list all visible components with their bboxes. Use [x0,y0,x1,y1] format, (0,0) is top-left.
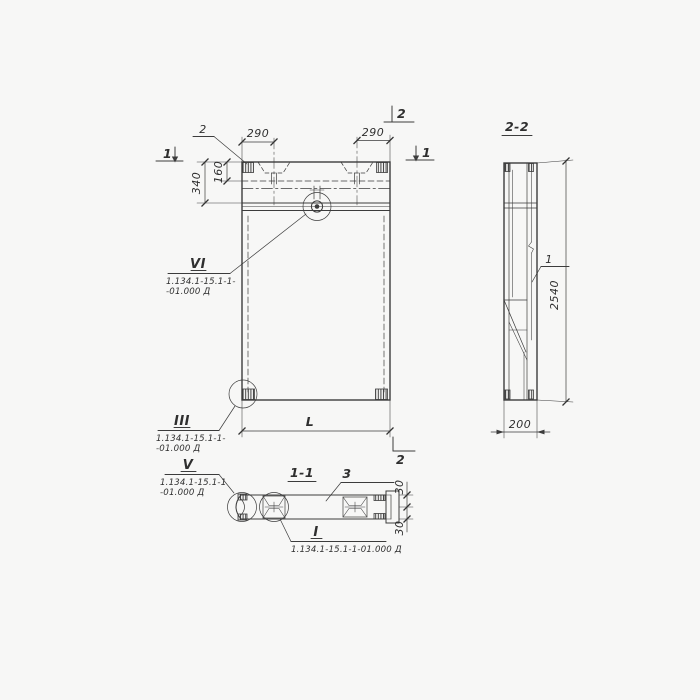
callout-vi: VI 1.134.1-15.1-1- -01.000 Д [166,214,306,297]
callout-vi-numeral: VI [190,257,206,272]
callout-iii-numeral: III [174,414,190,429]
dim-length: L [306,414,314,429]
callout-i: I 1.134.1-15.1-1-01.000 Д [281,520,402,555]
callout-v-doc2: -01.000 Д [160,488,205,498]
callout-i-numeral: I [313,525,318,540]
marker-2-bottom-label: 2 [396,452,405,467]
embed-leader-label: 2 [199,123,207,136]
part-1-text: 1 [545,253,553,266]
marker-1-right-label: 1 [422,145,431,160]
section-marker-1-right: 1 [406,145,434,162]
embed-2-2-bottom-right [529,390,534,399]
callout-v: V 1.134.1-15.1-1 -01.000 Д [160,458,234,498]
callout-iii-doc2: -01.000 Д [156,444,201,454]
section-1-1-view: 1-1 3 [160,458,413,555]
anchor-marks [272,173,360,184]
socket-detail-1 [263,496,285,518]
section-2-2-title: 2-2 [505,119,529,134]
bar-right-end [374,491,399,523]
bar-left-end [236,494,247,520]
dim-340: 340 [190,172,203,195]
callout-vi-doc2: -01.000 Д [166,287,211,297]
section-marker-2-bottom: 2 [393,437,415,467]
embed-2-2-top-left [505,164,510,172]
part-3-text: 3 [342,466,351,481]
dim-200: 200 [509,418,532,431]
embed-leader: 2 [193,123,247,164]
embed-2-2-bottom-left [505,390,510,399]
elevation-view [229,137,390,408]
section-marker-2-top: 2 [384,106,414,122]
dim-290-left: 290 [247,127,270,140]
marker-2-top-label: 2 [397,106,406,121]
section-1-1-title: 1-1 [290,465,314,480]
dim-160: 160 [212,161,225,184]
wedge-detail [504,300,527,400]
embed-plate-bottom-left [243,389,255,400]
dim-290-right: 290 [362,126,385,139]
marker-1-right-arrow [413,156,419,162]
callout-vi-doc1: 1.134.1-15.1-1- [166,277,236,287]
callout-iii: III 1.134.1-15.1-1- -01.000 Д [156,406,235,454]
callout-iii-doc1: 1.134.1-15.1-1- [156,434,226,444]
embed-2-2-top-right [529,164,534,172]
break-mark [529,242,534,253]
drawing-sheet: 290 290 2 340 160 1 [0,0,700,700]
panel-outline [242,162,390,400]
embed-plate-top-left [243,163,254,173]
technical-drawing: 290 290 2 340 160 1 [0,0,700,700]
dim-200-arrow-right [537,430,545,435]
marker-1-left-arrow [172,157,178,163]
embed-plate-top-right [377,163,388,173]
dims-30: 30 30 [393,480,413,536]
section-marker-1-left: 1 [156,146,183,163]
dim-2540: 2540 [548,280,561,310]
embed-plate-bottom-right [376,389,388,400]
marker-1-left-label: 1 [163,146,172,161]
dim-30-top: 30 [393,480,406,495]
dim-200-arrow-left [497,430,505,435]
callout-v-doc1: 1.134.1-15.1-1 [160,478,226,488]
callout-v-numeral: V [183,458,194,473]
callout-i-doc: 1.134.1-15.1-1-01.000 Д [291,545,402,555]
socket-detail-2 [343,497,367,517]
dim-30-bottom: 30 [393,521,406,536]
section-2-2-view: 2-2 1 [491,119,573,438]
